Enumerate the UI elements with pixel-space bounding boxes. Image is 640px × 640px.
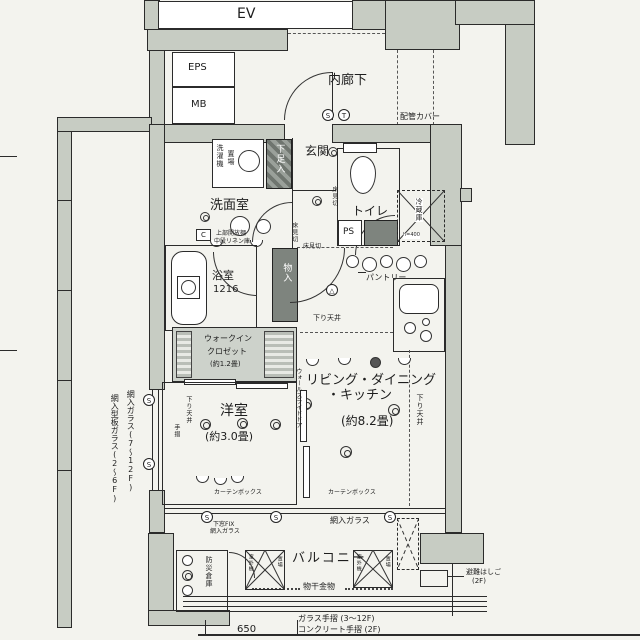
wall-top-right xyxy=(385,0,460,50)
balcony-right-edge xyxy=(452,564,453,616)
note-laundry-hardware: 物干金物 xyxy=(303,582,335,591)
toilet-tank xyxy=(343,143,377,153)
room-label-wic-1: ウォークイン xyxy=(204,334,252,343)
note-pipe-cover: 配管カバー xyxy=(400,112,440,121)
note-handrail: 手摺 xyxy=(172,424,179,438)
rail-line-4 xyxy=(183,611,487,612)
label-c: C xyxy=(201,231,206,239)
mark-s-left-1: S xyxy=(143,394,155,406)
mark-s-window-2: S xyxy=(270,511,282,523)
wall-tick-4 xyxy=(57,470,72,471)
edge-tick-1 xyxy=(0,156,17,157)
lowered-ceiling-dash-v xyxy=(409,350,410,506)
ladder-leader xyxy=(448,576,464,577)
mark-s-window-3: S xyxy=(384,511,396,523)
note-fridge-height: h=400 xyxy=(403,233,420,239)
wall-neighbor-side xyxy=(505,24,535,145)
wall-below-ev xyxy=(147,29,288,51)
shoe-box: 下足入 xyxy=(266,139,292,189)
mark-s-window-1: S xyxy=(201,511,213,523)
pantry-shelf-icon xyxy=(380,255,393,268)
room-label-ldk-2: ・キッチン xyxy=(327,389,392,404)
bottom-heavy-line xyxy=(198,634,640,636)
note-shelf-1: 上部開放棚 xyxy=(216,231,246,238)
note-escape-ladder-1: 避難はしご xyxy=(466,568,501,576)
label-outdoor-unit-2a: 室外機 xyxy=(355,554,361,572)
note-curtain-box-1: カーテンボックス xyxy=(214,490,262,497)
room-label-ev: EV xyxy=(237,6,255,22)
downlight-icon xyxy=(312,196,322,206)
note-lowered-ceiling-2: 下り天井 xyxy=(416,394,424,426)
note-lowered-ceiling-3: 下り天井 xyxy=(184,396,191,424)
room-label-washroom: 洗面室 xyxy=(210,199,249,214)
label-bedroom-size: (約3.0畳) xyxy=(205,431,253,444)
label-washer-1: 洗濯機 xyxy=(216,144,224,168)
wic-shelf-left xyxy=(176,331,192,378)
wall-building-left xyxy=(57,117,72,628)
slide-door-panel-2 xyxy=(303,446,310,498)
note-escape-ladder-2: (2F) xyxy=(472,577,486,585)
room-label-corridor: 内廊下 xyxy=(328,74,367,89)
wall-disaster-bottom xyxy=(148,610,230,626)
downlight-icon xyxy=(237,418,248,429)
wall-neighbor-top xyxy=(455,0,535,25)
hall-ldk-door-arc xyxy=(290,248,345,303)
tub-drain-icon xyxy=(181,280,196,295)
pantry-shelf-icon xyxy=(362,257,377,272)
wall-tick-1 xyxy=(57,200,72,201)
note-glass-lower-floors: 網入型板ガラス(2〜6F) xyxy=(110,394,119,503)
edge-tick-2 xyxy=(0,350,17,351)
note-floor-divider-1: 床見切 xyxy=(330,186,337,207)
scale-tick-right xyxy=(297,620,298,634)
service-box xyxy=(364,220,398,246)
mark-s-entrance: S xyxy=(322,109,334,121)
ev-shaft xyxy=(158,1,354,29)
fixture-icon xyxy=(370,357,381,368)
fixture-icon xyxy=(182,555,193,566)
downlight-icon xyxy=(200,212,210,222)
label-ps: PS xyxy=(343,227,354,237)
mark-t-entrance: T xyxy=(338,109,350,121)
floor-plan: EV EPS MB 内廊下 配管カバー S T 玄関 下足入 洗濯機 置場 xyxy=(0,0,640,640)
fixture-icon xyxy=(306,359,319,366)
wall-tick-2 xyxy=(57,290,72,291)
pipe-cover-dash-1 xyxy=(397,50,398,125)
pantry-leader xyxy=(358,272,366,273)
corridor-dashed-line xyxy=(288,33,385,34)
ps-box: PS xyxy=(338,220,362,246)
label-washer-2: 置場 xyxy=(227,150,235,166)
room-label-disaster: 防災倉庫 xyxy=(205,556,213,588)
note-wired-glass: 網入ガラス xyxy=(330,516,370,525)
laundry-dotted-right xyxy=(345,588,393,590)
downlight-icon xyxy=(270,419,281,430)
rail-line-2 xyxy=(183,601,487,602)
room-label-ldk-1: リビング・ダイニング xyxy=(306,374,436,389)
pantry-shelf-icon xyxy=(396,257,411,272)
wall-unit-top-right xyxy=(332,124,435,143)
stove-burner-icon xyxy=(420,330,432,342)
bedroom-window-line2 xyxy=(158,390,159,490)
label-shoe-box: 下足入 xyxy=(274,144,284,174)
wic-shelf-right xyxy=(264,331,294,378)
wall-unit-left-upper xyxy=(149,124,165,390)
washer-drum-icon xyxy=(238,150,260,172)
stove-burner-icon xyxy=(404,322,416,334)
pantry-shelf-icon xyxy=(414,255,427,268)
washroom-door-arc xyxy=(252,202,292,242)
downlight-icon xyxy=(340,446,352,458)
stove-burner-icon xyxy=(422,318,430,326)
ladder-box xyxy=(420,570,448,587)
window-line-1 xyxy=(165,508,445,509)
label-wic-size: (約1.2畳) xyxy=(210,360,241,368)
note-floor-divider-2: 床見切 xyxy=(290,222,297,243)
wall-left-connector xyxy=(57,117,152,132)
note-lowered-ceiling-1: 下り天井 xyxy=(313,314,341,322)
fixture-icon xyxy=(182,585,193,596)
ldk-boundary-dash xyxy=(297,247,393,248)
note-glass-rail: ガラス手摺 (3〜12F) xyxy=(298,614,375,623)
label-fridge: 冷蔵庫 xyxy=(415,198,423,222)
lowered-ceiling-dash-h xyxy=(300,332,393,333)
wall-disaster-left xyxy=(148,533,174,618)
pantry-shelf-icon xyxy=(346,255,359,268)
note-curtain-box-2: カーテンボックス xyxy=(328,490,376,497)
wall-bump xyxy=(460,188,472,202)
kitchen-sink xyxy=(399,284,439,314)
wall-balcony-right xyxy=(420,533,484,564)
scale-value: 650 xyxy=(237,624,256,636)
controller-box: C xyxy=(196,229,211,241)
mark-s-left-2: S xyxy=(143,458,155,470)
room-label-entrance: 玄関 xyxy=(305,145,329,159)
note-lower-fix-2: 網入ガラス xyxy=(210,529,240,536)
note-wall-slide-door: ウォールスライドドア xyxy=(294,368,301,428)
room-label-bedroom: 洋室 xyxy=(220,403,248,419)
label-outdoor-unit-2b: 置場 xyxy=(384,556,390,568)
room-label-wic-2: クロゼット xyxy=(207,347,247,356)
label-ldk-size: (約8.2畳) xyxy=(341,415,393,429)
downlight-icon xyxy=(182,570,193,581)
wall-unit-right-lower xyxy=(445,245,462,533)
note-concrete-rail: コンクリート手摺 (2F) xyxy=(298,625,380,634)
wall-tick-3 xyxy=(57,380,72,381)
downlight-icon xyxy=(388,404,400,416)
fixture-icon xyxy=(338,358,351,365)
room-label-eps: EPS xyxy=(188,62,207,74)
hatch-cross-icon xyxy=(397,518,419,570)
rail-line-3 xyxy=(183,606,487,607)
sensor-icon: △ xyxy=(326,284,338,296)
scale-tick-left xyxy=(205,620,206,634)
label-outdoor-unit-1b: 置場 xyxy=(276,556,282,568)
room-label-mb: MB xyxy=(191,99,207,111)
rail-line-1 xyxy=(183,596,487,597)
downlight-icon xyxy=(200,419,211,430)
note-glass-upper-floors: 網入ガラス(7〜12F) xyxy=(126,390,135,492)
